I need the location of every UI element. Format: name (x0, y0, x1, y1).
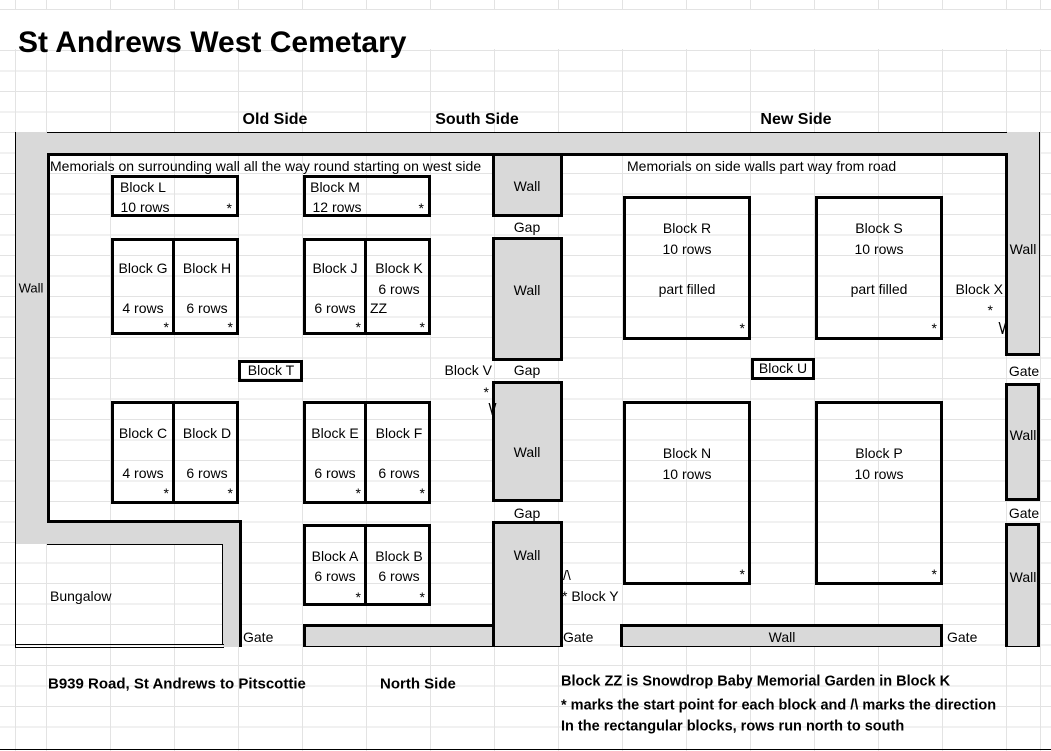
block-t-name: Block T (248, 362, 294, 378)
block-b-rows: 6 rows (378, 568, 419, 584)
block-s-name: Block S (855, 220, 902, 236)
legend-zz-note: Block ZZ is Snowdrop Baby Memorial Garde… (561, 674, 950, 691)
block-s-start-marker: * (932, 320, 937, 336)
cemetery-map-sheet: St Andrews West Cemetary Old Side South … (0, 0, 1051, 751)
block-d-rows: 6 rows (186, 465, 227, 481)
road-label: B939 Road, St Andrews to Pitscottie (48, 675, 306, 692)
block-r-start-marker: * (740, 320, 745, 336)
block-r-box (623, 196, 751, 340)
wall-west-band (15, 132, 47, 544)
middle-wall-4-label: Wall (514, 547, 541, 563)
block-h-start-marker: * (228, 319, 233, 335)
block-r-rows: 10 rows (662, 241, 711, 257)
block-j-rows: 6 rows (314, 300, 355, 316)
block-r-fill: part filled (659, 281, 716, 297)
block-e-start-marker: * (356, 485, 361, 501)
bungalow-bottom-border-1 (15, 644, 224, 645)
old-enclosure-gate-border (239, 520, 242, 647)
middle-gap-3-label: Gap (514, 505, 540, 521)
block-a-start-marker: * (356, 589, 361, 605)
block-y-direction-marker: /\ (563, 567, 571, 583)
east-wall-top-label: Wall (1010, 241, 1037, 257)
block-e-name: Block E (311, 425, 358, 441)
block-e-f-divider (364, 404, 367, 501)
block-c-d-divider (172, 404, 175, 501)
east-gate-top-label: Gate (1009, 363, 1039, 379)
old-enclosure-left-border (47, 153, 50, 523)
middle-wall-2-label: Wall (514, 282, 541, 298)
block-n-start-marker: * (740, 566, 745, 582)
block-a-rows: 6 rows (314, 568, 355, 584)
block-m-name: Block M (310, 179, 360, 195)
compass-south-side: South Side (435, 111, 519, 129)
block-m-rows: 12 rows (312, 199, 361, 215)
middle-gap-1-label: Gap (514, 219, 540, 235)
wall-gate-strip (223, 523, 239, 647)
block-m-start-marker: * (419, 200, 424, 216)
block-p-box (815, 401, 943, 585)
wall-south-band-old (303, 624, 495, 647)
legend-rows-note: In the rectangular blocks, rows run nort… (561, 719, 904, 736)
east-gate-bottom-label: Gate (1009, 505, 1039, 521)
block-v-start-marker: * (484, 384, 489, 400)
block-k-rows: 6 rows (378, 281, 419, 297)
block-a-b-box (303, 524, 431, 606)
block-a-name: Block A (312, 548, 359, 564)
block-d-name: Block D (183, 425, 231, 441)
block-g-start-marker: * (164, 319, 169, 335)
block-s-rows: 10 rows (854, 241, 903, 257)
block-g-name: Block G (118, 260, 167, 276)
block-n-box (623, 401, 751, 585)
old-enclosure-top-border (47, 153, 492, 156)
block-d-start-marker: * (228, 485, 233, 501)
block-s-box (815, 196, 943, 340)
block-l-name: Block L (120, 179, 166, 195)
block-c-d-box (111, 401, 239, 504)
block-g-h-divider (172, 241, 175, 332)
gridline-right (1040, 0, 1041, 751)
new-enclosure-top-border (563, 153, 1005, 156)
block-c-start-marker: * (164, 485, 169, 501)
block-r-name: Block R (663, 220, 711, 236)
east-wall-mid-label: Wall (1010, 427, 1037, 443)
block-c-rows: 4 rows (122, 465, 163, 481)
south-wall-bar-label: Wall (769, 629, 796, 645)
block-j-name: Block J (312, 260, 357, 276)
block-k-start-marker: * (420, 319, 425, 335)
block-x-direction-marker: \/ (999, 319, 1005, 339)
wall-middle-4 (492, 521, 563, 647)
block-h-rows: 6 rows (186, 300, 227, 316)
block-n-rows: 10 rows (662, 466, 711, 482)
bungalow-bottom-border-2 (15, 647, 224, 648)
legend-start-note: * marks the start point for each block a… (561, 698, 996, 715)
old-enclosure-sw-border (47, 520, 242, 523)
bungalow-label: Bungalow (50, 588, 112, 604)
sheet-bottom-edge (0, 749, 1051, 750)
gate-southwest-label: Gate (243, 629, 273, 645)
block-y-name: * Block Y (562, 588, 619, 604)
wall-southwest-band (47, 523, 239, 544)
block-h-name: Block H (183, 260, 231, 276)
bungalow-right-border (222, 544, 223, 644)
block-x-name: Block X (956, 281, 1003, 297)
block-b-start-marker: * (420, 589, 425, 605)
compass-north-side: North Side (380, 675, 456, 692)
middle-gap-2-label: Gap (514, 362, 540, 378)
block-u-name: Block U (759, 360, 807, 376)
gate-south-middle-label: Gate (563, 629, 593, 645)
east-wall-left-border (1005, 153, 1008, 356)
block-k-name: Block K (375, 260, 422, 276)
old-side-memorials-note: Memorials on surrounding wall all the wa… (50, 158, 481, 174)
east-wall-bottom-border (1005, 353, 1040, 356)
block-l-start-marker: * (227, 200, 232, 216)
west-wall-label: Wall (19, 282, 44, 297)
block-b-name: Block B (375, 548, 422, 564)
block-f-rows: 6 rows (378, 465, 419, 481)
wall-top-band (15, 132, 1040, 153)
block-v-name: Block V (445, 362, 492, 378)
block-x-start-marker: * (988, 302, 993, 318)
block-a-b-divider (364, 527, 367, 603)
block-n-name: Block N (663, 445, 711, 461)
wall-middle-3 (492, 381, 563, 502)
middle-wall-1-label: Wall (514, 178, 541, 194)
block-c-name: Block C (119, 425, 167, 441)
middle-wall-3-label: Wall (514, 444, 541, 460)
bungalow-top-border (47, 544, 223, 545)
block-g-h-box (111, 238, 239, 335)
bungalow-left-border (15, 544, 16, 648)
block-j-start-marker: * (356, 319, 361, 335)
block-k-zz-label: ZZ (370, 300, 387, 316)
block-j-k-divider (364, 241, 367, 332)
wall-middle-2 (492, 237, 563, 361)
block-f-name: Block F (376, 425, 423, 441)
east-wall-bottom-label: Wall (1010, 569, 1037, 585)
block-l-rows: 10 rows (120, 199, 169, 215)
block-g-rows: 4 rows (122, 300, 163, 316)
new-side-memorials-note: Memorials on side walls part way from ro… (627, 158, 896, 174)
block-e-f-box (303, 401, 431, 504)
block-p-name: Block P (855, 445, 902, 461)
block-p-rows: 10 rows (854, 466, 903, 482)
gate-southeast-label: Gate (947, 629, 977, 645)
page-title: St Andrews West Cemetary (18, 26, 406, 61)
compass-old-side: Old Side (243, 111, 308, 129)
block-f-start-marker: * (420, 485, 425, 501)
block-s-fill: part filled (851, 281, 908, 297)
block-p-start-marker: * (932, 566, 937, 582)
compass-new-side: New Side (760, 111, 831, 129)
block-v-direction-marker: \/ (489, 400, 495, 420)
block-e-rows: 6 rows (314, 465, 355, 481)
